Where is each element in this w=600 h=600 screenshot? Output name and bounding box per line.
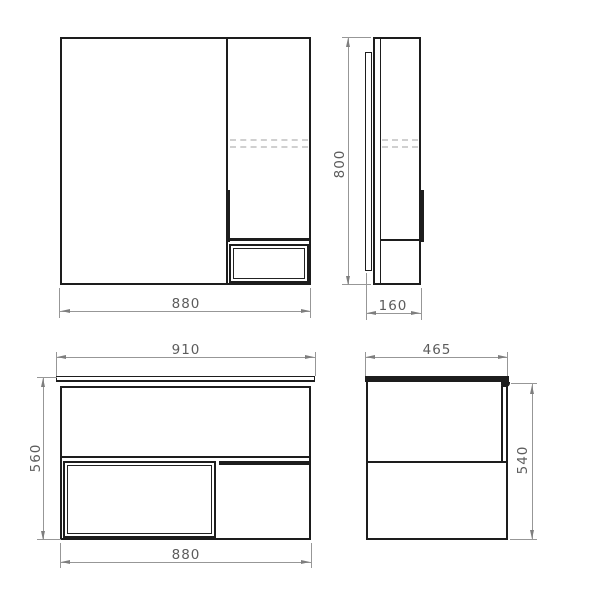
dim-label-vanity-side-height: 540 bbox=[516, 440, 530, 480]
dim-label-vanity-depth: 465 bbox=[412, 343, 462, 357]
technical-drawing-canvas: 880 800 160 910 bbox=[0, 0, 600, 600]
upper-drawer-front-line bbox=[501, 386, 503, 462]
dim-arrow-right bbox=[498, 355, 507, 359]
view-vanity-side: 465 540 bbox=[0, 0, 600, 600]
dim-arrow-down bbox=[530, 530, 534, 539]
dim-extension-line bbox=[511, 383, 537, 384]
dim-arrow-left bbox=[366, 355, 375, 359]
dim-line-vanity-side-height bbox=[532, 384, 533, 540]
dim-extension-line bbox=[507, 352, 508, 376]
drawer-divider-side bbox=[368, 461, 506, 463]
dim-arrow-up bbox=[530, 385, 534, 394]
